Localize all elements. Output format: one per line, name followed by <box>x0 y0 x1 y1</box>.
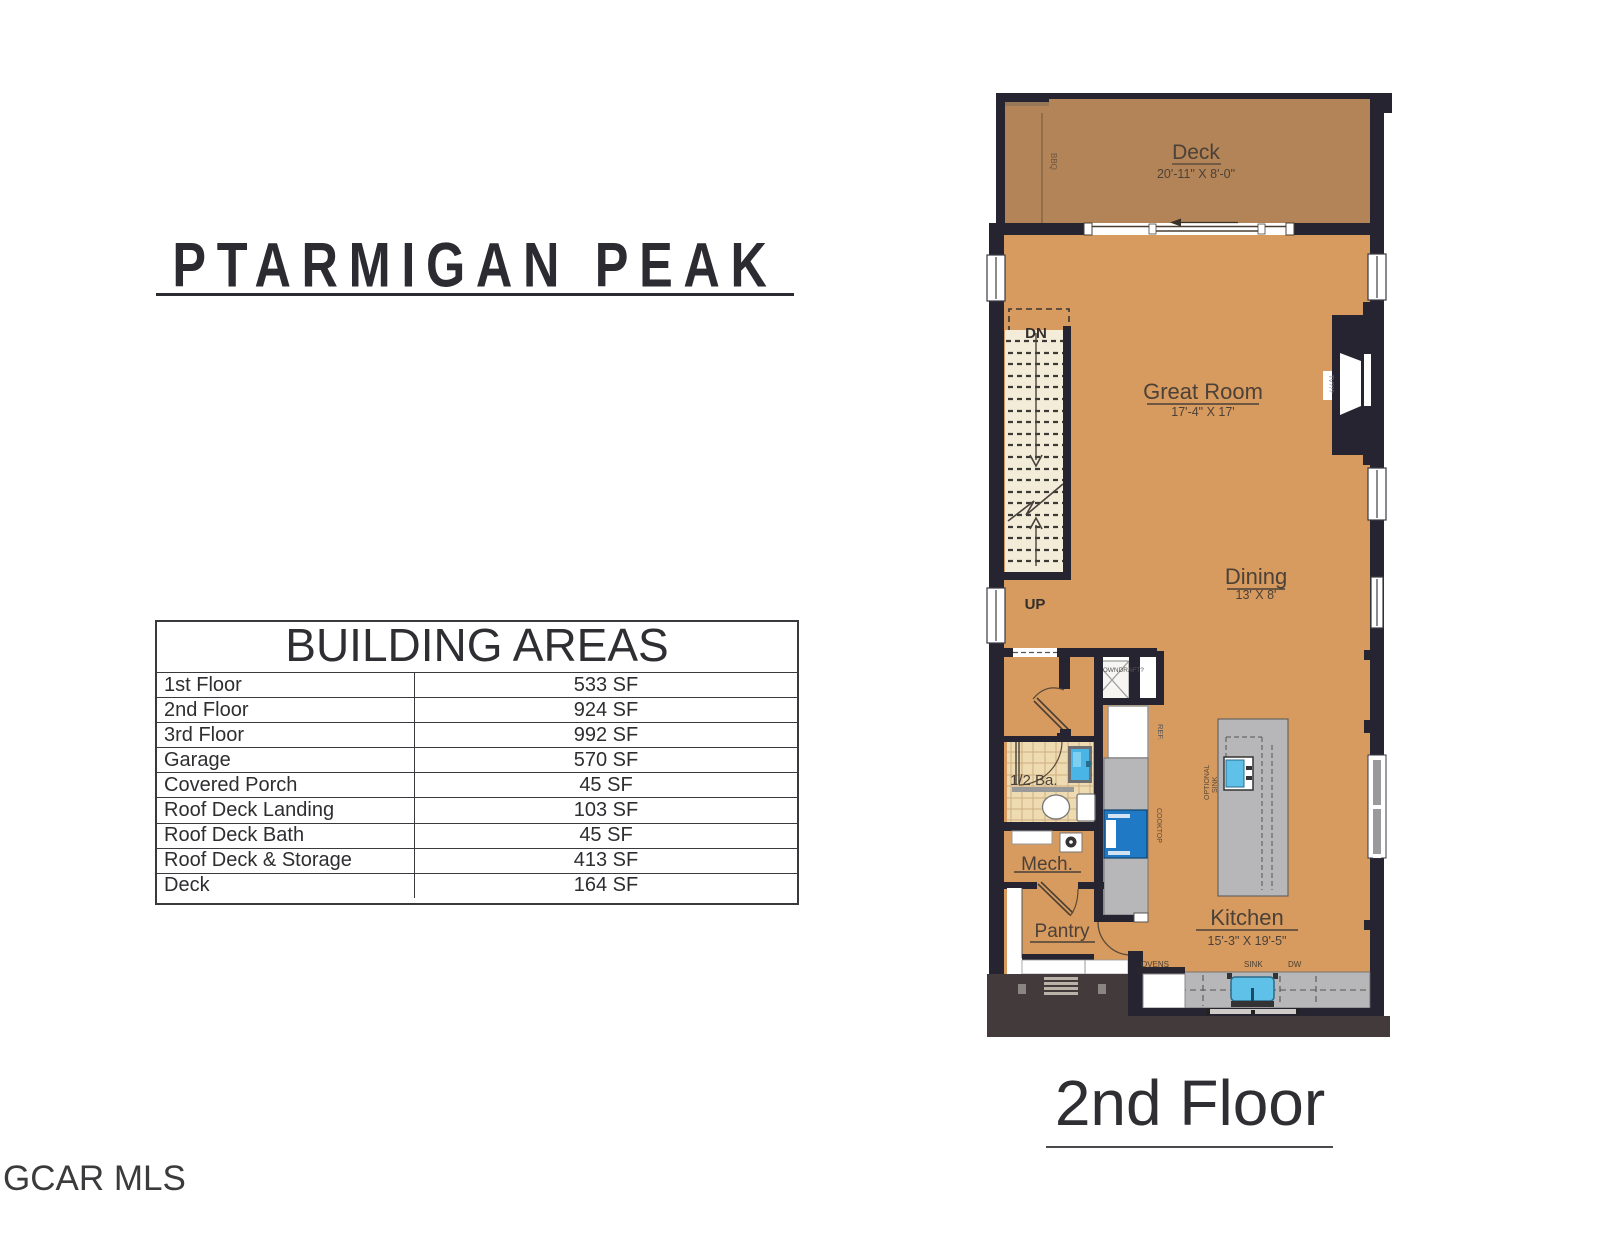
svg-text:TV???: TV??? <box>1327 375 1333 393</box>
svg-text:UP: UP <box>1025 596 1046 613</box>
svg-text:DN: DN <box>1025 325 1047 342</box>
svg-text:13' X 8': 13' X 8' <box>1236 588 1277 602</box>
svg-text:20'-11" X 8'-0": 20'-11" X 8'-0" <box>1157 167 1235 181</box>
svg-text:Kitchen: Kitchen <box>1210 905 1283 930</box>
svg-text:Great Room: Great Room <box>1143 379 1263 404</box>
svg-text:BBQ: BBQ <box>1049 153 1058 170</box>
svg-text:Deck: Deck <box>1172 141 1220 164</box>
svg-text:OVENS: OVENS <box>1141 960 1169 969</box>
svg-text:DW: DW <box>1288 960 1302 969</box>
svg-text:COOKTOP: COOKTOP <box>1155 808 1162 843</box>
svg-text:REF.: REF. <box>1156 724 1165 740</box>
svg-text:SINK: SINK <box>1244 960 1263 969</box>
svg-text:DOWNDRAFT?: DOWNDRAFT? <box>1098 667 1144 674</box>
svg-text:Pantry: Pantry <box>1035 921 1090 942</box>
svg-text:15'-3" X 19'-5": 15'-3" X 19'-5" <box>1208 934 1287 948</box>
svg-text:1/2 Ba.: 1/2 Ba. <box>1010 772 1058 789</box>
svg-text:17'-4" X 17': 17'-4" X 17' <box>1171 405 1234 419</box>
svg-text:Dining: Dining <box>1225 564 1287 589</box>
svg-text:SINK: SINK <box>1212 776 1219 793</box>
svg-text:OPTIONAL: OPTIONAL <box>1204 764 1211 800</box>
